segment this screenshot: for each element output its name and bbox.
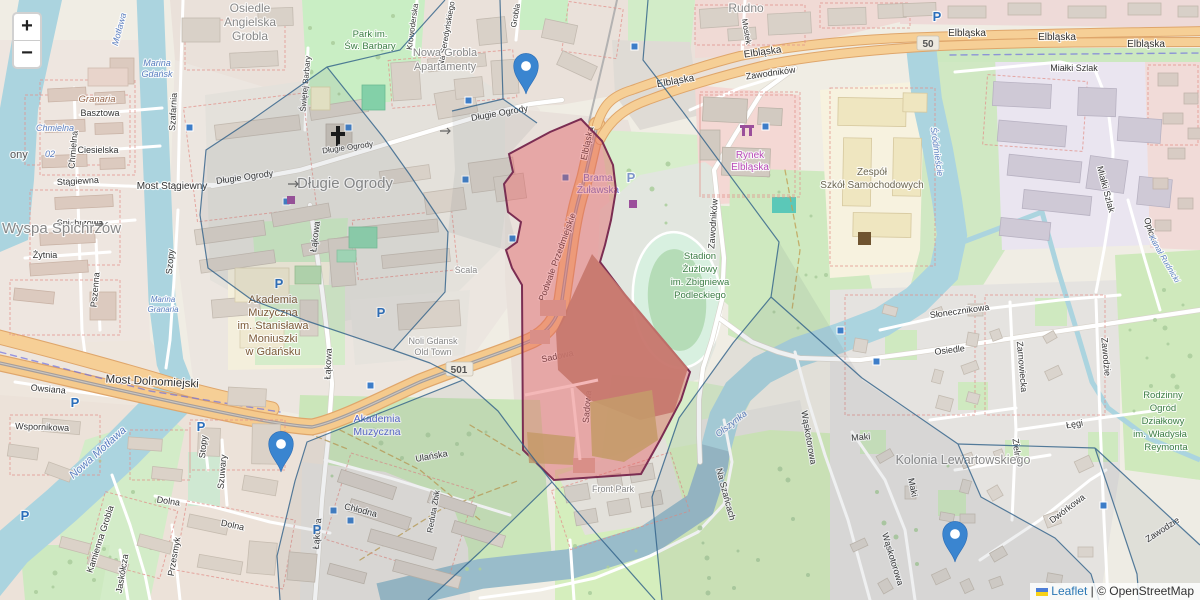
svg-text:Moniuszki: Moniuszki <box>249 333 298 345</box>
svg-text:Park im.: Park im. <box>353 29 388 40</box>
svg-text:Ogród: Ogród <box>1150 403 1176 414</box>
svg-text:Noli Gdansk: Noli Gdansk <box>408 336 458 346</box>
svg-text:50: 50 <box>922 39 934 50</box>
svg-text:Żużlowy: Żużlowy <box>683 264 718 275</box>
svg-text:w Gdańsku: w Gdańsku <box>244 346 300 358</box>
svg-text:Elbląska: Elbląska <box>731 162 769 173</box>
svg-text:Basztowa: Basztowa <box>80 108 119 118</box>
svg-text:im. Stanisława: im. Stanisława <box>238 320 310 332</box>
svg-text:Działkowy: Działkowy <box>1142 416 1185 427</box>
svg-text:Front Park: Front Park <box>592 484 635 494</box>
svg-text:Grobla: Grobla <box>232 29 268 43</box>
svg-text:02: 02 <box>45 149 55 159</box>
svg-text:Zespół: Zespół <box>857 167 888 178</box>
svg-text:Rynek: Rynek <box>736 150 765 161</box>
svg-text:Wspornikowa: Wspornikowa <box>15 421 69 433</box>
svg-text:Angielska: Angielska <box>224 15 276 29</box>
svg-text:Szkół Samochodowych: Szkół Samochodowych <box>820 180 923 191</box>
svg-text:Rudno: Rudno <box>728 1 764 15</box>
svg-text:Miałki Szlak: Miałki Szlak <box>1050 63 1098 73</box>
svg-text:P: P <box>933 9 942 24</box>
svg-text:Nowa Grobla: Nowa Grobla <box>413 47 478 59</box>
svg-text:Marina: Marina <box>151 295 176 304</box>
svg-text:im. Zbigniewa: im. Zbigniewa <box>671 277 730 288</box>
svg-text:Szafarnia: Szafarnia <box>167 93 179 132</box>
svg-text:Elbląska: Elbląska <box>1127 39 1165 50</box>
svg-text:Most Stągiewny: Most Stągiewny <box>137 181 208 192</box>
svg-text:Osiedle: Osiedle <box>230 1 271 15</box>
svg-text:Rodzinny: Rodzinny <box>1143 390 1183 401</box>
svg-text:Stopy: Stopy <box>197 434 209 458</box>
svg-text:Św. Barbary: Św. Barbary <box>344 40 395 52</box>
svg-text:Elbląska: Elbląska <box>1038 32 1076 43</box>
svg-text:im. Władysła: im. Władysła <box>1133 429 1188 440</box>
svg-text:P: P <box>21 508 30 523</box>
svg-text:Ciesielska: Ciesielska <box>77 145 118 155</box>
svg-text:Scala: Scala <box>455 265 478 275</box>
svg-text:Granaria: Granaria <box>79 94 116 105</box>
svg-text:Reymonta: Reymonta <box>1144 442 1188 453</box>
svg-text:Marina: Marina <box>143 58 171 68</box>
svg-text:Gdańsk: Gdańsk <box>141 69 173 79</box>
svg-text:P: P <box>71 395 80 410</box>
svg-text:P: P <box>197 419 206 434</box>
svg-text:Łąkowa: Łąkowa <box>322 348 334 380</box>
svg-text:P: P <box>627 170 636 185</box>
svg-text:Old Town: Old Town <box>414 347 451 357</box>
svg-text:ony: ony <box>10 149 28 161</box>
svg-text:Chmielna: Chmielna <box>36 123 74 133</box>
svg-text:Wyspa Spichrzów: Wyspa Spichrzów <box>2 220 121 237</box>
svg-text:Podleckiego: Podleckiego <box>674 290 726 301</box>
svg-text:Żytnia: Żytnia <box>33 250 58 260</box>
svg-text:Stadion: Stadion <box>684 251 716 262</box>
svg-text:Apartamenty: Apartamenty <box>414 61 477 73</box>
svg-text:Elbląska: Elbląska <box>948 28 986 39</box>
svg-text:Granaria: Granaria <box>147 305 179 314</box>
